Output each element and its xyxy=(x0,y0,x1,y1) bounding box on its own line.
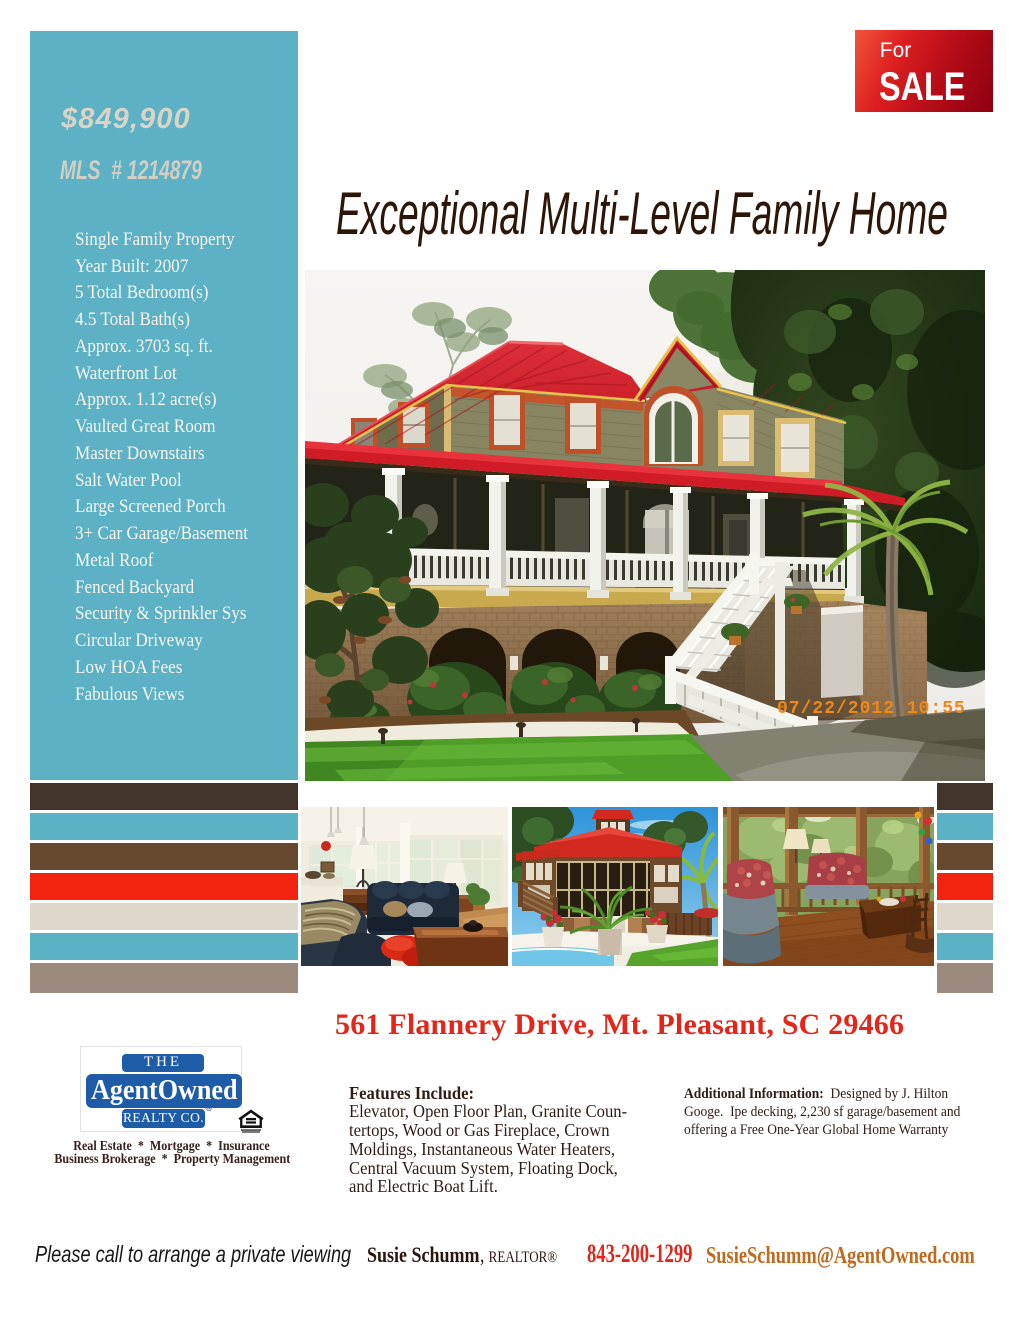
svg-text:07/22/2012 10:55: 07/22/2012 10:55 xyxy=(777,699,966,719)
